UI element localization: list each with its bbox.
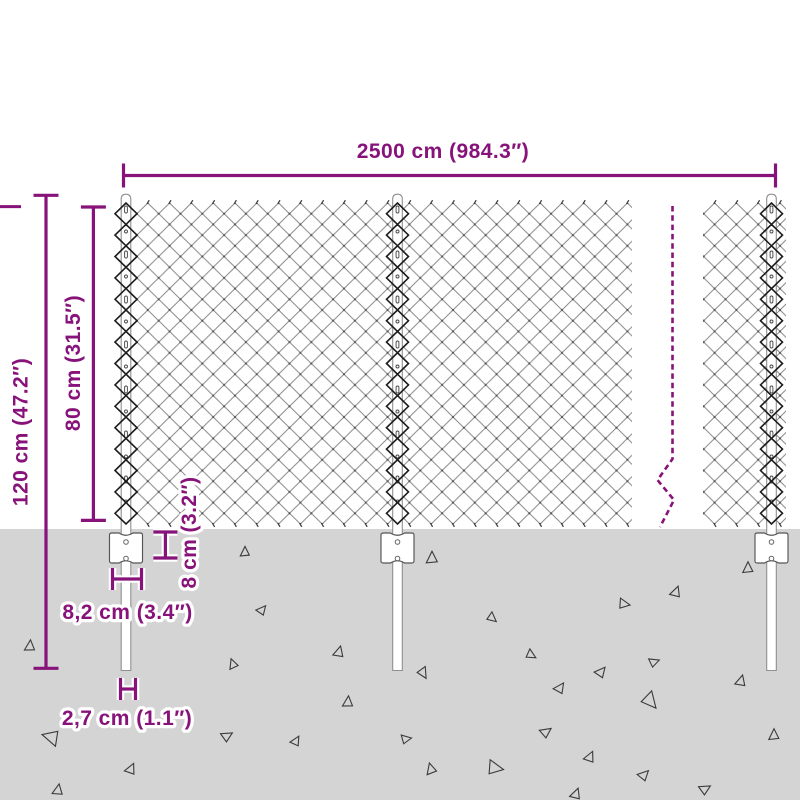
svg-text:8 cm (3.2″): 8 cm (3.2″) <box>178 477 201 589</box>
svg-text:8,2 cm (3.4″): 8,2 cm (3.4″) <box>62 601 192 624</box>
svg-text:2,7 cm (1.1″): 2,7 cm (1.1″) <box>62 707 192 730</box>
svg-text:120 cm (47.2″): 120 cm (47.2″) <box>10 358 33 506</box>
svg-text:2500 cm (984.3″): 2500 cm (984.3″) <box>357 140 530 163</box>
svg-text:80 cm (31.5″): 80 cm (31.5″) <box>62 295 85 431</box>
